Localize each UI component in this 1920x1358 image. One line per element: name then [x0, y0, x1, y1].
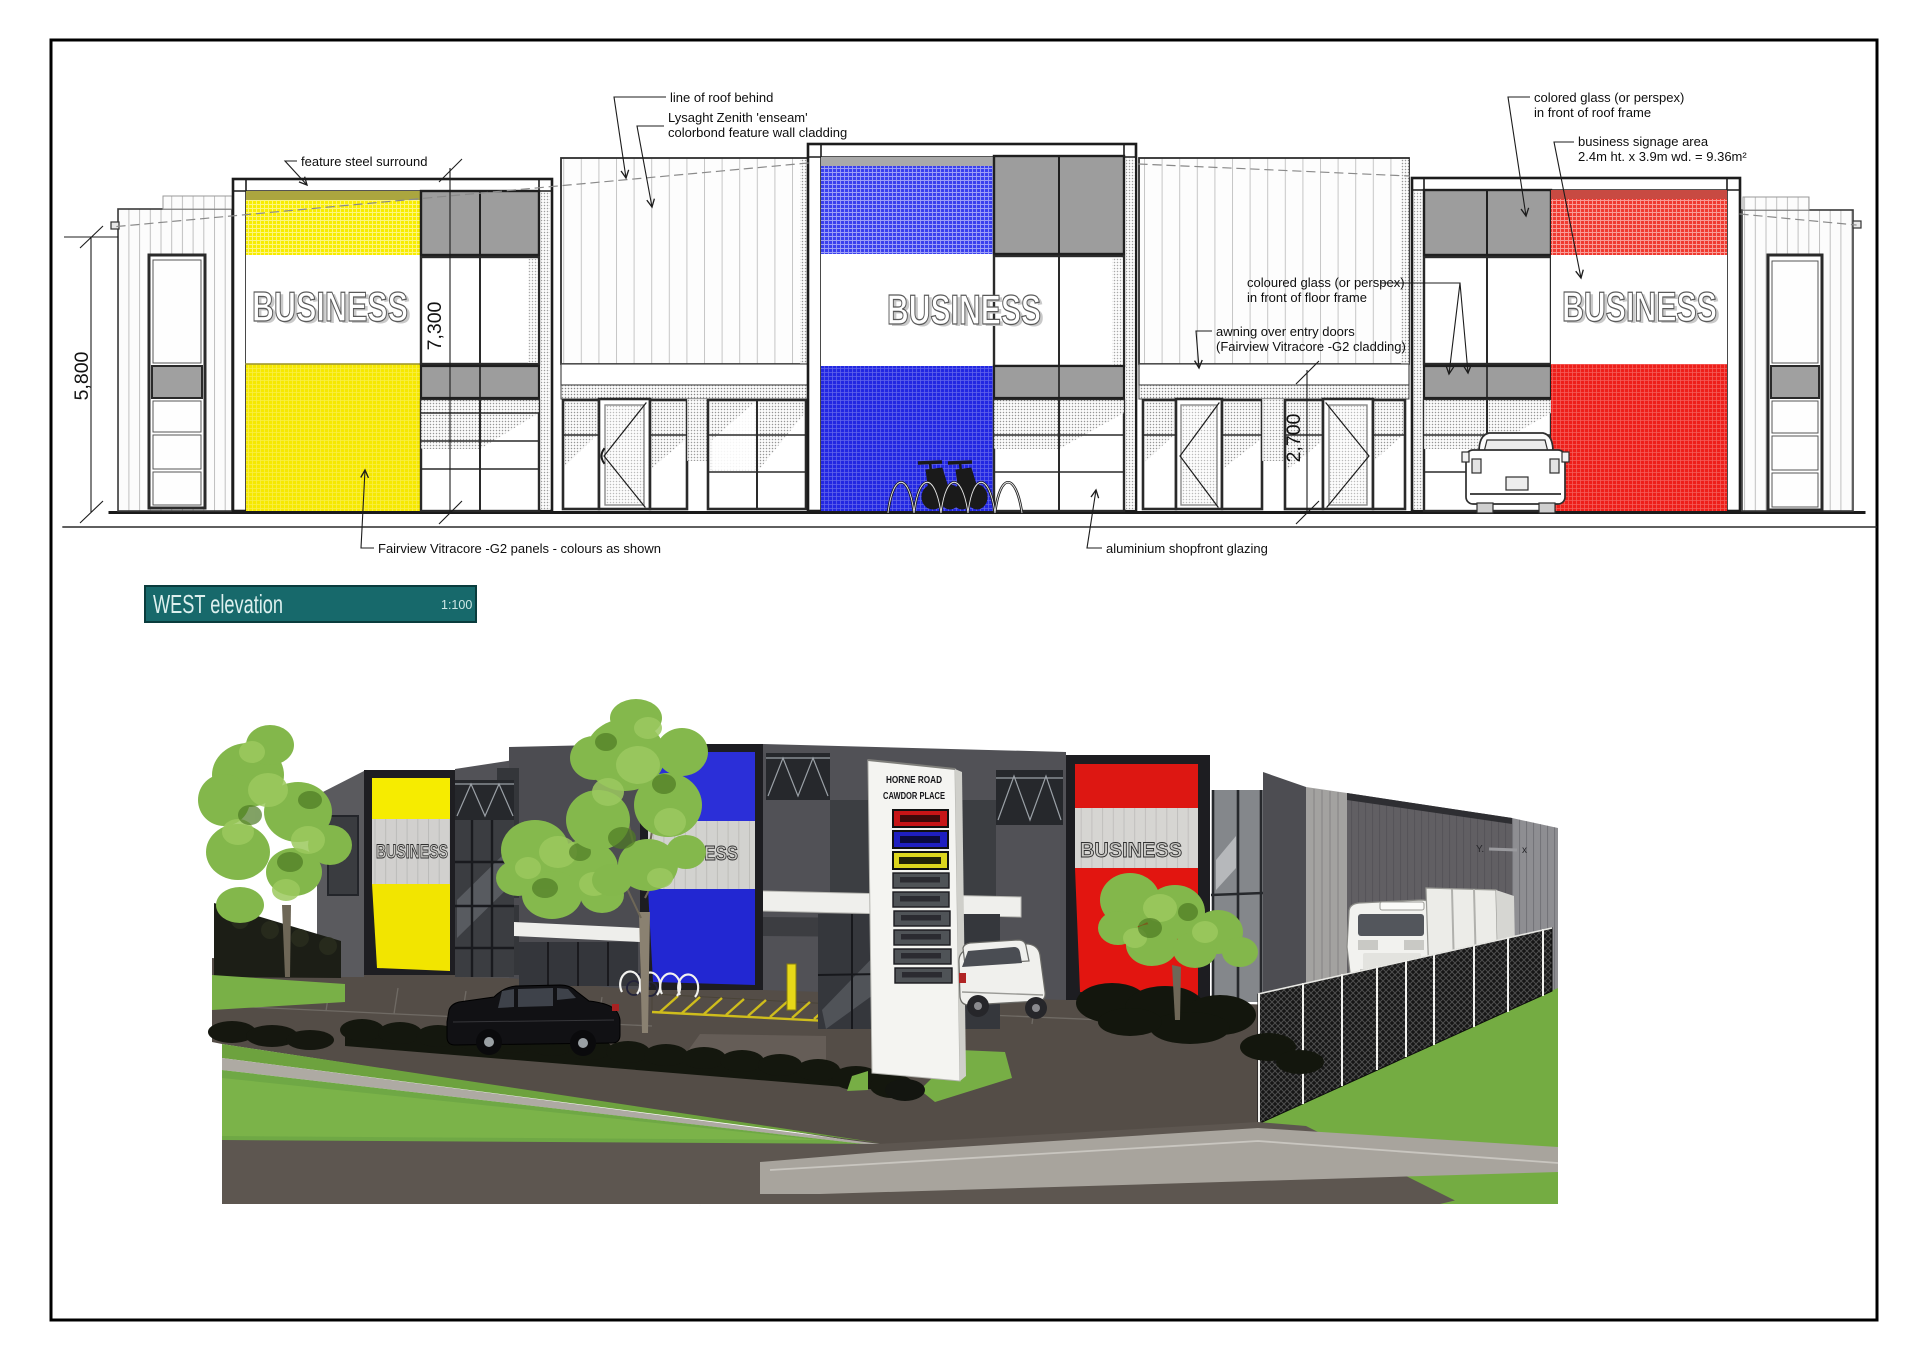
svg-text:(Fairview Vitracore -G2 claddi: (Fairview Vitracore -G2 cladding) — [1216, 339, 1406, 354]
svg-text:Y.: Y. — [1476, 844, 1484, 855]
svg-text:CAWDOR PLACE: CAWDOR PLACE — [883, 791, 945, 802]
svg-text:WEST elevation: WEST elevation — [153, 589, 283, 619]
svg-text:awning over entry doors: awning over entry doors — [1216, 324, 1355, 339]
svg-text:2,700: 2,700 — [1283, 413, 1305, 462]
svg-text:7,300: 7,300 — [424, 301, 446, 350]
svg-text:aluminium shopfront glazing: aluminium shopfront glazing — [1106, 541, 1268, 556]
svg-text:x: x — [1522, 845, 1527, 856]
svg-text:BUSINESS: BUSINESS — [1080, 839, 1182, 862]
svg-text:BUSINESS: BUSINESS — [887, 286, 1041, 333]
svg-text:colored glass (or perspex): colored glass (or perspex) — [1534, 90, 1684, 105]
svg-text:business signage area: business signage area — [1578, 134, 1709, 149]
svg-text:colorbond feature wall claddin: colorbond feature wall cladding — [668, 125, 847, 140]
svg-text:5,800: 5,800 — [71, 351, 93, 400]
svg-text:2.4m ht. x 3.9m wd. = 9.36m²: 2.4m ht. x 3.9m wd. = 9.36m² — [1578, 149, 1747, 164]
svg-text:in front of floor frame: in front of floor frame — [1247, 290, 1367, 305]
svg-text:Lysaght Zenith 'enseam': Lysaght Zenith 'enseam' — [668, 110, 808, 125]
svg-text:feature steel surround: feature steel surround — [301, 154, 427, 169]
svg-text:line of roof behind: line of roof behind — [670, 90, 773, 105]
svg-text:in front of roof frame: in front of roof frame — [1534, 105, 1651, 120]
svg-text:1:100: 1:100 — [441, 598, 472, 612]
svg-text:BUSINESS: BUSINESS — [376, 842, 448, 863]
svg-text:HORNE ROAD: HORNE ROAD — [886, 775, 942, 786]
svg-text:Fairview Vitracore -G2 panels: Fairview Vitracore -G2 panels - colours … — [378, 541, 661, 556]
svg-text:BUSINESS: BUSINESS — [1562, 283, 1717, 330]
svg-text:BUSINESS: BUSINESS — [252, 283, 408, 330]
